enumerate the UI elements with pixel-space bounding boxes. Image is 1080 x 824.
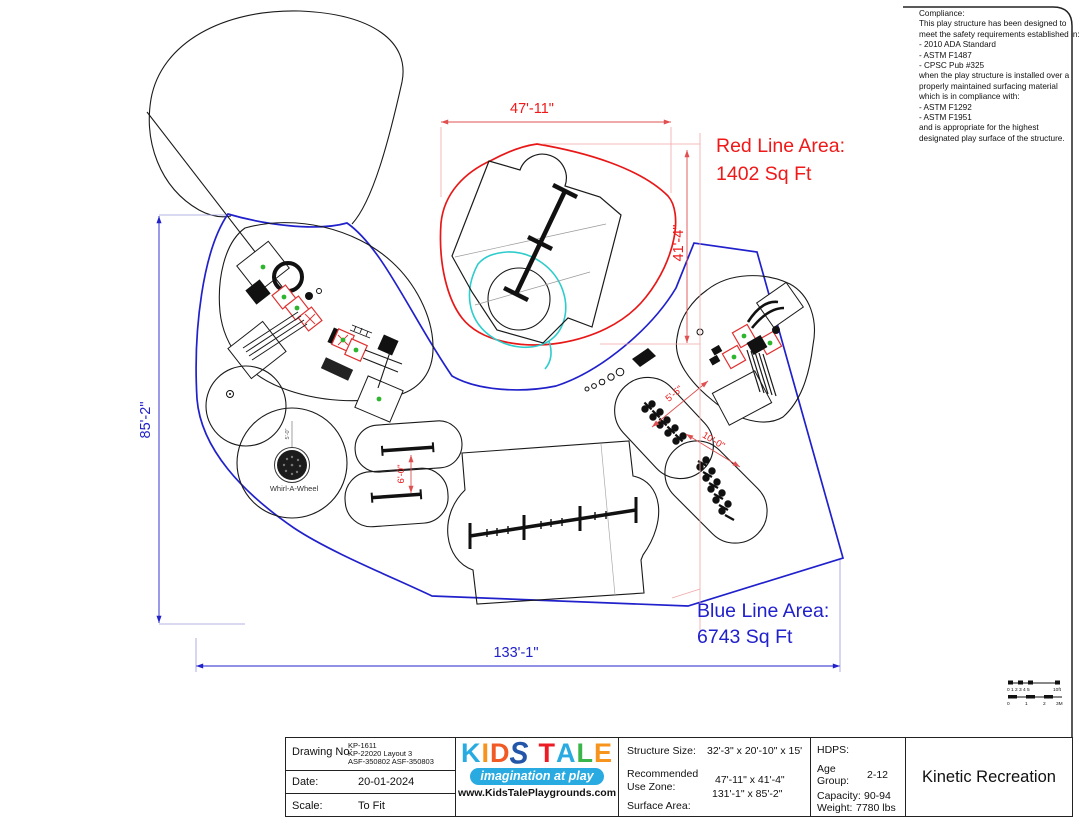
bottom-dim-label: 133'-1" xyxy=(493,645,538,661)
site-plan-canvas: 5'-0" Whirl-A-Wheel 6'-0" xyxy=(0,0,1080,824)
hdps-label: HDPS: xyxy=(817,744,849,756)
right-play-structure xyxy=(676,276,814,426)
compliance-line: - ASTM F1292 xyxy=(919,103,1077,113)
red-area-label-line1: Red Line Area: xyxy=(716,135,845,157)
logo-cell: KIDSTALE imagination at play www.KidsTal… xyxy=(456,738,619,816)
red-line-boundary xyxy=(440,144,675,345)
logo-website: www.KidsTalePlaygrounds.com xyxy=(456,787,618,799)
bench-and-steppers xyxy=(585,348,656,391)
weight-label: Weight: xyxy=(817,802,852,814)
kids-tale-logo: KIDSTALE xyxy=(456,740,618,767)
age-label-1: Age xyxy=(817,763,836,775)
top-structure xyxy=(452,154,621,343)
compliance-line: which is in compliance with: xyxy=(919,92,1077,102)
specs-cell: Structure Size: 32'-3" x 20'-10" x 15' R… xyxy=(619,738,811,816)
compliance-line: - ASTM F1951 xyxy=(919,113,1077,123)
blue-area-label-line1: Blue Line Area: xyxy=(697,600,829,622)
compliance-line: Compliance: xyxy=(919,9,1077,19)
structure-size-label: Structure Size: xyxy=(627,745,696,757)
logo-letter: I xyxy=(481,740,490,767)
age-label-2: Group: xyxy=(817,775,849,787)
compliance-note: Compliance:This play structure has been … xyxy=(919,9,1077,144)
company-name: Kinetic Recreation xyxy=(922,768,1056,787)
red-dimensions: 47'-11" 41'-4" xyxy=(441,101,700,630)
logo-tagline: imagination at play xyxy=(470,768,603,785)
scale-m-0: 0 xyxy=(1007,701,1010,707)
structure-size-value: 32'-3" x 20'-10" x 15' xyxy=(707,745,802,757)
hdps-cell: HDPS: Age Group: 2-12 Capacity: 90-94 We… xyxy=(811,738,906,816)
logo-letter: E xyxy=(594,740,613,767)
date-label: Date: xyxy=(292,776,318,788)
surface-area-value: 131'-1" x 85'-2" xyxy=(712,788,782,800)
capacity-label: Capacity: xyxy=(817,790,861,802)
logo-letter: A xyxy=(556,740,577,767)
compliance-line: - 2010 ADA Standard xyxy=(919,40,1077,50)
logo-letter: K xyxy=(461,740,482,767)
red-area-label-line2: 1402 Sq Ft xyxy=(716,163,812,185)
drawing-no-label: Drawing No: xyxy=(292,746,353,758)
scale-row: Scale: To Fit xyxy=(286,794,455,816)
logo-letter: D xyxy=(490,740,511,767)
capacity-value: 90-94 xyxy=(864,790,891,802)
swing-zone xyxy=(448,441,659,604)
compliance-line: designated play surface of the structure… xyxy=(919,134,1077,144)
date-value: 20-01-2024 xyxy=(358,776,414,788)
scale-m-1: 1 xyxy=(1025,701,1028,707)
date-row: Date: 20-01-2024 xyxy=(286,771,455,794)
compliance-line: properly maintained surfacing material xyxy=(919,82,1077,92)
use-zone-label-2: Use Zone: xyxy=(627,781,675,793)
drawing-no-line: ASF-350802 ASF-350803 xyxy=(348,758,434,766)
scale-value: To Fit xyxy=(358,800,385,812)
scale-bar: 0 1 2 3 4 5 10ft 0 1 2 3M xyxy=(1007,681,1063,708)
logo-letter: T xyxy=(539,740,557,767)
use-zone-label-1: Recommended xyxy=(627,768,698,780)
scale-m-2: 2 xyxy=(1043,701,1046,707)
weight-value: 7780 lbs xyxy=(856,802,896,814)
compliance-line: - ASTM F1487 xyxy=(919,51,1077,61)
scale-label: Scale: xyxy=(292,800,323,812)
logo-letter: S xyxy=(510,738,530,769)
left-dim-label: 85'-2" xyxy=(138,402,154,439)
scale-ft-end: 10ft xyxy=(1053,687,1062,693)
title-block: Drawing No: KP-1611KP-22020 Layout 3ASF-… xyxy=(285,737,1073,817)
blue-area-label-line2: 6743 Sq Ft xyxy=(697,626,793,648)
drawing-no-row: Drawing No: KP-1611KP-22020 Layout 3ASF-… xyxy=(286,738,455,771)
surface-area-label: Surface Area: xyxy=(627,800,691,812)
company-cell: Kinetic Recreation xyxy=(906,738,1072,816)
scale-m-3: 3M xyxy=(1056,701,1063,707)
top-dim-label: 47'-11" xyxy=(510,101,554,117)
pill-gap-dim: 6'-0" xyxy=(396,465,407,484)
compliance-line: and is appropriate for the highest xyxy=(919,123,1077,133)
drawing-sheet: 5'-0" Whirl-A-Wheel 6'-0" xyxy=(0,0,1080,824)
scale-ft-ticks: 0 1 2 3 4 5 xyxy=(1007,687,1030,693)
right-dim-label: 41'-4" xyxy=(671,225,687,262)
compliance-line: - CPSC Pub #325 xyxy=(919,61,1077,71)
rider-gap-dim-1: 5'-5" xyxy=(664,384,686,405)
compliance-line: This play structure has been designed to xyxy=(919,19,1077,29)
drawing-no-values: KP-1611KP-22020 Layout 3ASF-350802 ASF-3… xyxy=(348,742,434,767)
whirl-radius-dim: 5'-0" xyxy=(285,428,291,439)
whirl-label: Whirl-A-Wheel xyxy=(270,484,319,493)
use-zone-value: 47'-11" x 41'-4" xyxy=(715,774,785,786)
drawing-info-cell: Drawing No: KP-1611KP-22020 Layout 3ASF-… xyxy=(286,738,456,816)
compliance-line: meet the safety requirements established… xyxy=(919,30,1077,40)
whirl-a-wheel-zone: 5'-0" Whirl-A-Wheel xyxy=(206,366,347,518)
left-play-structure xyxy=(219,223,433,422)
logo-letter: L xyxy=(577,740,595,767)
seesaw-pill-zones: 6'-0" xyxy=(343,419,463,528)
age-value: 2-12 xyxy=(867,769,888,781)
compliance-line: when the play structure is installed ove… xyxy=(919,71,1077,81)
